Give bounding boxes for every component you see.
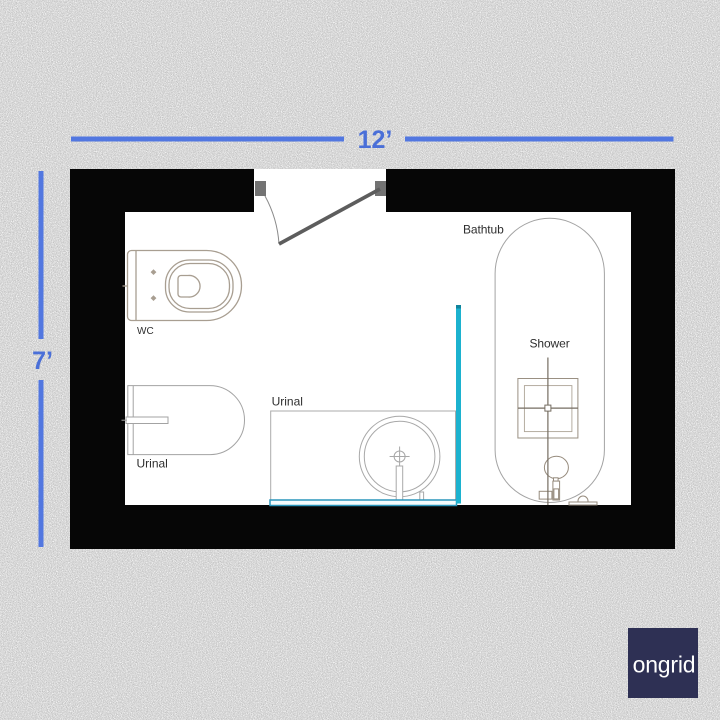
svg-text:Urinal: Urinal bbox=[137, 457, 168, 471]
svg-text:WC: WC bbox=[137, 326, 154, 337]
svg-text:12’: 12’ bbox=[358, 126, 393, 154]
svg-text:Shower: Shower bbox=[530, 337, 570, 351]
svg-text:7’: 7’ bbox=[32, 347, 53, 375]
svg-text:Urinal: Urinal bbox=[272, 395, 303, 409]
svg-text:ongrid: ongrid bbox=[633, 652, 696, 678]
svg-text:Bathtub: Bathtub bbox=[463, 223, 504, 237]
